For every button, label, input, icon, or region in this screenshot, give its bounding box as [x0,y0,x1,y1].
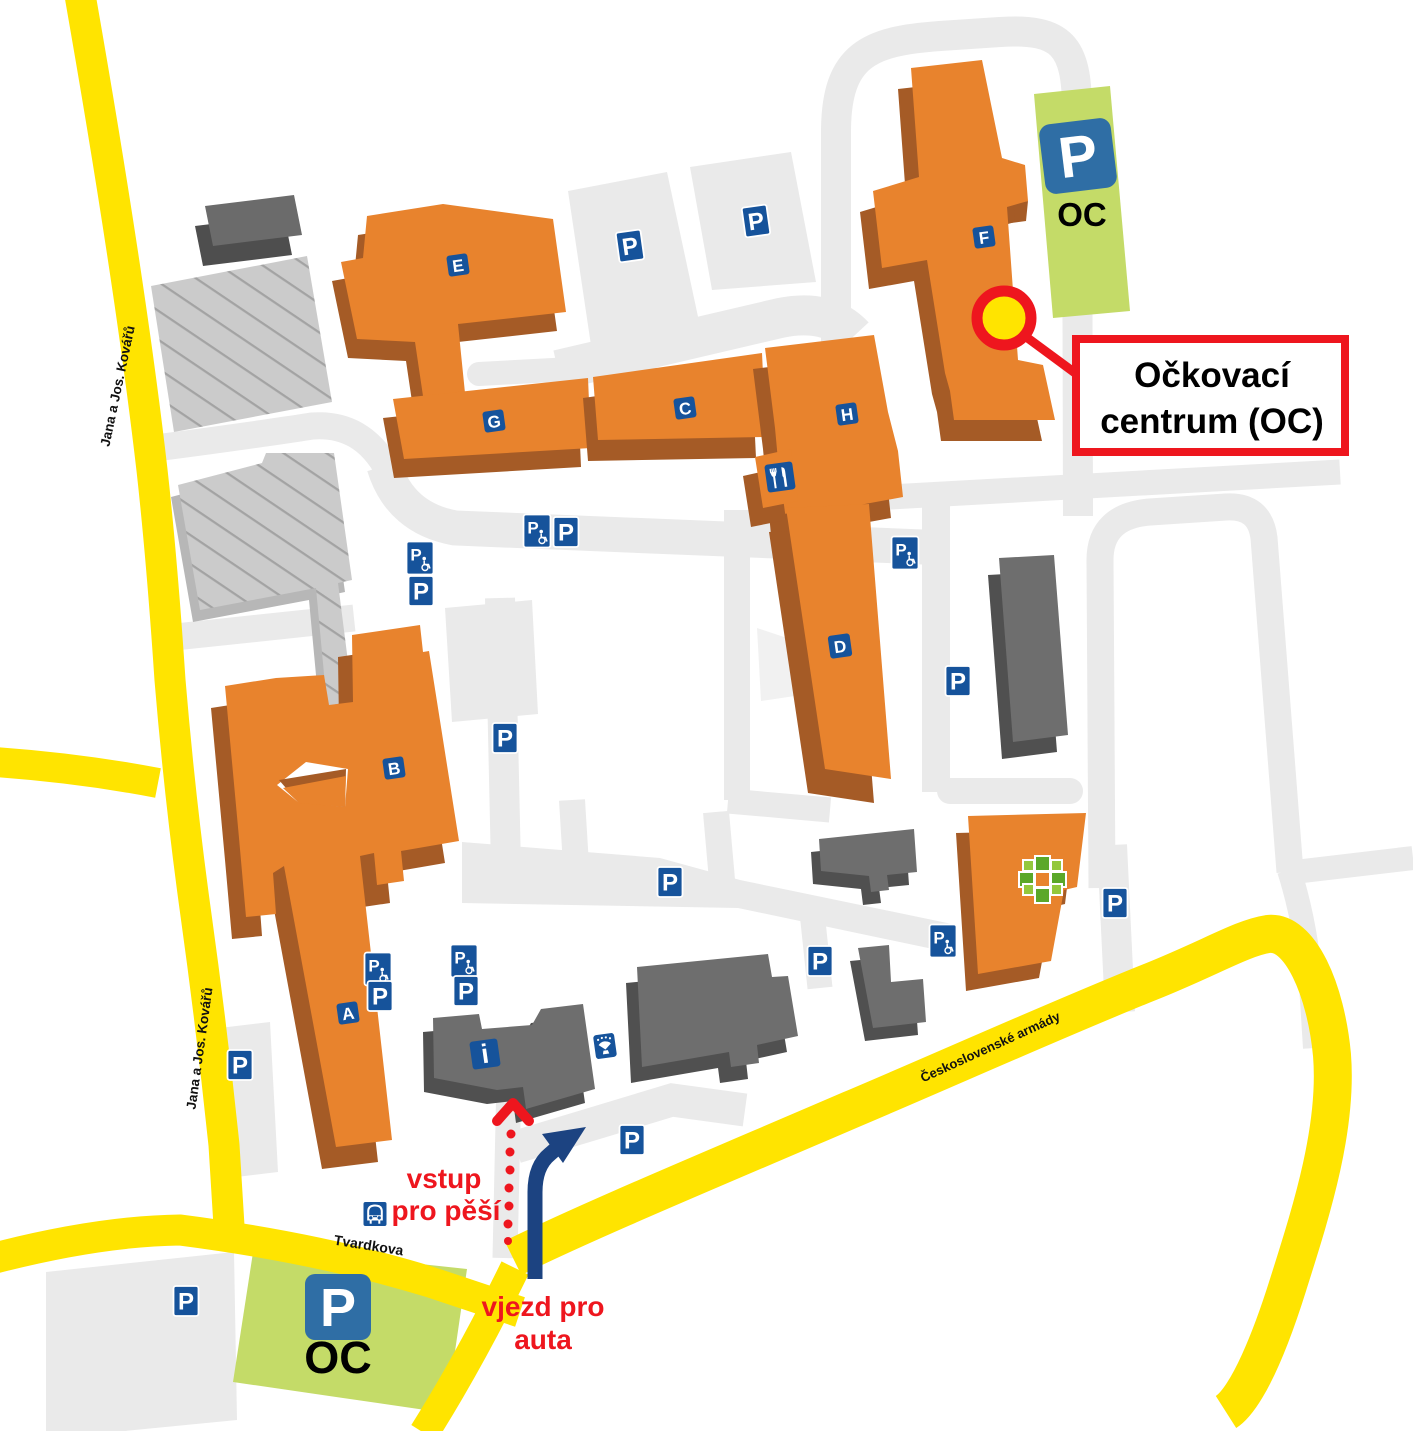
svg-text:vstup: vstup [407,1163,482,1194]
svg-text:Očkovací: Očkovací [1134,356,1291,395]
svg-text:A: A [341,1004,356,1025]
svg-text:auta: auta [514,1324,572,1355]
svg-text:B: B [387,759,402,780]
svg-text:centrum (OC): centrum (OC) [1100,402,1324,441]
svg-text:P: P [1055,122,1101,191]
svg-text:G: G [486,412,502,433]
svg-text:P: P [320,1278,356,1338]
svg-text:OC: OC [304,1332,372,1383]
svg-text:vjezd pro: vjezd pro [482,1291,605,1322]
svg-text:C: C [678,399,693,420]
svg-text:H: H [840,405,855,426]
svg-text:OC: OC [1057,196,1107,233]
svg-text:pro pěší: pro pěší [392,1195,502,1226]
svg-text:D: D [833,637,848,658]
